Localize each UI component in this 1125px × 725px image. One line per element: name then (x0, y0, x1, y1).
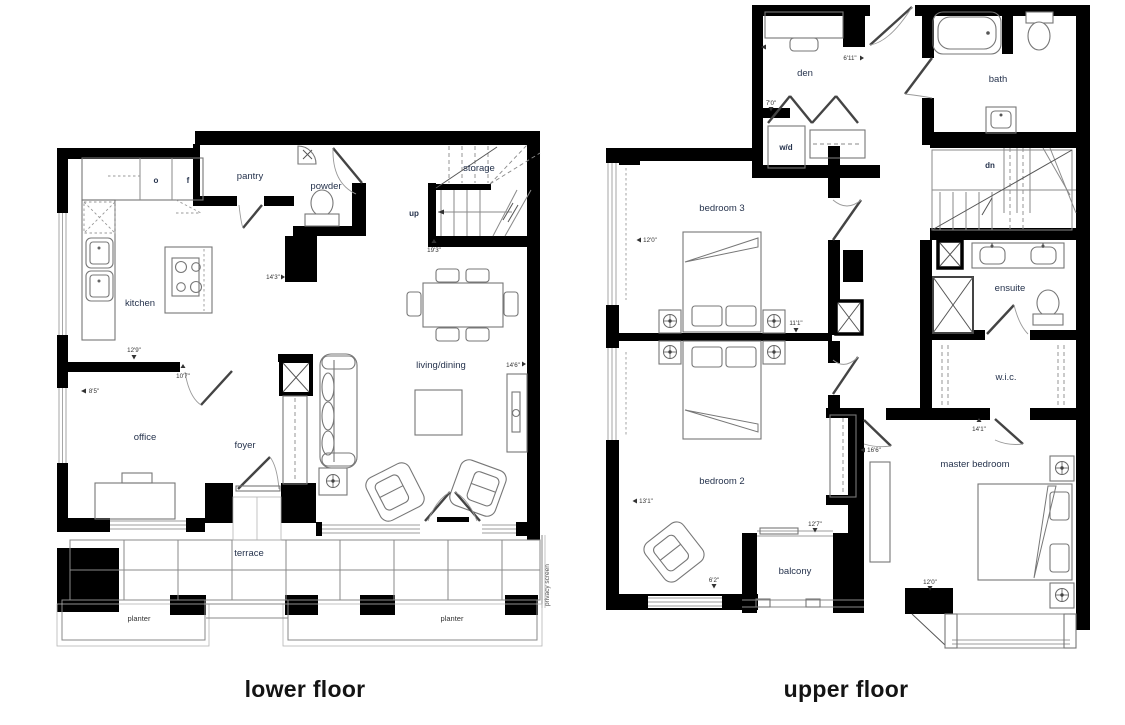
master-width-dim: 12'0" (923, 579, 937, 586)
lower-floor-title: lower floor (245, 676, 366, 702)
wic-label: w.i.c. (994, 372, 1016, 383)
pantry-label: pantry (237, 171, 264, 182)
kitchen-width-dim: 12'9" (127, 347, 141, 354)
powder-label: powder (310, 181, 341, 192)
entry-door (236, 457, 280, 491)
master-bay-window (912, 614, 1076, 648)
lower-floor-plan: o f kitchen pantry powder (57, 131, 551, 646)
bedroom2-door (833, 357, 858, 394)
toilet-icon-ensuite (1033, 290, 1063, 325)
office-depth-dim: 8'5" (89, 388, 99, 395)
cooktop-icon (172, 258, 202, 296)
pantry-door (239, 205, 262, 228)
floorplan-drawing: o f kitchen pantry powder (0, 0, 1125, 725)
planter-right-label: planter (441, 614, 464, 623)
desk-icon-den (765, 12, 843, 51)
planter-right: planter (283, 600, 542, 646)
office-label: office (134, 432, 157, 443)
upper-floor-title: upper floor (784, 676, 909, 702)
bathtub-icon (933, 12, 1001, 54)
side-table-lamp (319, 468, 347, 495)
balcony-label: balcony (779, 566, 812, 577)
stairs-up-label: up (409, 209, 419, 218)
upper-windows (606, 163, 722, 608)
privacy-screen: privacy screen (542, 535, 551, 608)
dining-table-icon (407, 269, 518, 341)
elevator-shaft-icon (281, 361, 311, 394)
stairs-down-area: dn (932, 148, 1076, 230)
office-width-dim: 10'7" (176, 373, 190, 380)
laundry-label: w/d (778, 143, 792, 152)
stair-run-dim: 19'3" (427, 247, 441, 254)
shaft-icon-ensuite (938, 241, 962, 268)
bedroom2-width-dim: 13'1" (639, 498, 653, 505)
wic-door (995, 419, 1023, 445)
office-area: office 10'7" 8'5" 12'9" 14'3" (81, 274, 285, 519)
foyer-label: foyer (234, 440, 255, 451)
ensuite-door (987, 305, 1028, 334)
closet-width-dim: 16'6" (867, 447, 881, 454)
bedroom3-width-dim: 12'0" (643, 237, 657, 244)
toilet-icon (305, 190, 339, 226)
oven-label: o (154, 176, 159, 185)
bedroom2-label: bedroom 2 (699, 476, 744, 487)
laundry-area: w/d (768, 96, 865, 168)
stairs-down-label: dn (985, 161, 995, 170)
living-dining-area: living/dining 14'6" (281, 269, 527, 524)
ensuite-area: ensuite (933, 241, 1064, 334)
tv-console-icon (507, 374, 527, 452)
kitchen-area: o f kitchen (82, 158, 212, 340)
master-bedroom-label: master bedroom (940, 459, 1009, 470)
planter-left-label: planter (128, 614, 151, 623)
den-depth-dim: 7'0" (766, 100, 776, 107)
bedroom3-label: bedroom 3 (699, 203, 744, 214)
dresser-icon (870, 462, 890, 562)
bedroom3-area: bedroom 3 12'0" 11'1" (637, 200, 862, 333)
bath-sink-icon (986, 107, 1016, 133)
upper-floor-plan: den 6'11" 7'0" w/d (606, 5, 1090, 648)
corner-cabinet-icon (84, 202, 115, 233)
living-dining-label: living/dining (416, 360, 466, 371)
wic-area: w.i.c. 14'1" (942, 345, 1064, 445)
storage-label: storage (463, 163, 495, 174)
terrace-label: terrace (234, 548, 264, 559)
balcony-width-dim: 12'7" (808, 521, 822, 528)
floorplan-page: o f kitchen pantry powder (0, 0, 1125, 725)
stairs-down-icon (932, 148, 1076, 230)
foyer-area: foyer (234, 440, 280, 491)
armchair-icon-bedroom2 (640, 518, 707, 585)
kitchen-island (165, 247, 212, 313)
wic-width-dim: 14'1" (972, 426, 986, 433)
shower-icon (933, 277, 973, 333)
bath-label: bath (989, 74, 1008, 85)
den-width-dim: 6'11" (843, 55, 856, 62)
den-label: den (797, 68, 813, 79)
bed-icon-bedroom2 (683, 341, 761, 439)
desk-icon (95, 473, 175, 519)
toilet-icon-bath (1026, 12, 1053, 50)
den-entry-door (870, 7, 912, 45)
terrace-french-doors (425, 492, 480, 522)
privacy-screen-label: privacy screen (544, 564, 551, 606)
bed-icon-master (978, 484, 1072, 580)
balcony-depth-dim: 6'2" (709, 577, 719, 584)
double-vanity-icon (972, 243, 1064, 268)
fridge-label: f (187, 176, 190, 185)
bedroom3-door (833, 200, 861, 240)
bedroom3-depth-dim: 11'1" (789, 320, 802, 327)
kitchen-sink-icon (86, 238, 113, 301)
corner-sink-icon (298, 146, 316, 164)
pantry-area: pantry (237, 171, 264, 228)
living-width-dim: 14'6" (506, 362, 520, 369)
armchair-icon-left (363, 460, 428, 525)
kitchen-label: kitchen (125, 298, 155, 309)
ensuite-label: ensuite (995, 283, 1026, 294)
shaft-icon-hall (836, 301, 862, 334)
armchair-icon-right (447, 457, 509, 519)
master-bedroom-area: master bedroom 12'0" (864, 420, 1076, 648)
office-door (185, 371, 232, 405)
stairs-up-icon (436, 145, 540, 236)
coffee-table-icon (415, 390, 462, 435)
kitchen-depth-dim: 14'3" (266, 274, 280, 281)
bath-door (905, 58, 934, 98)
sofa-icon (320, 354, 357, 468)
coat-closet (283, 396, 307, 484)
bed-icon-bedroom3 (683, 232, 761, 332)
master-door (864, 420, 891, 447)
